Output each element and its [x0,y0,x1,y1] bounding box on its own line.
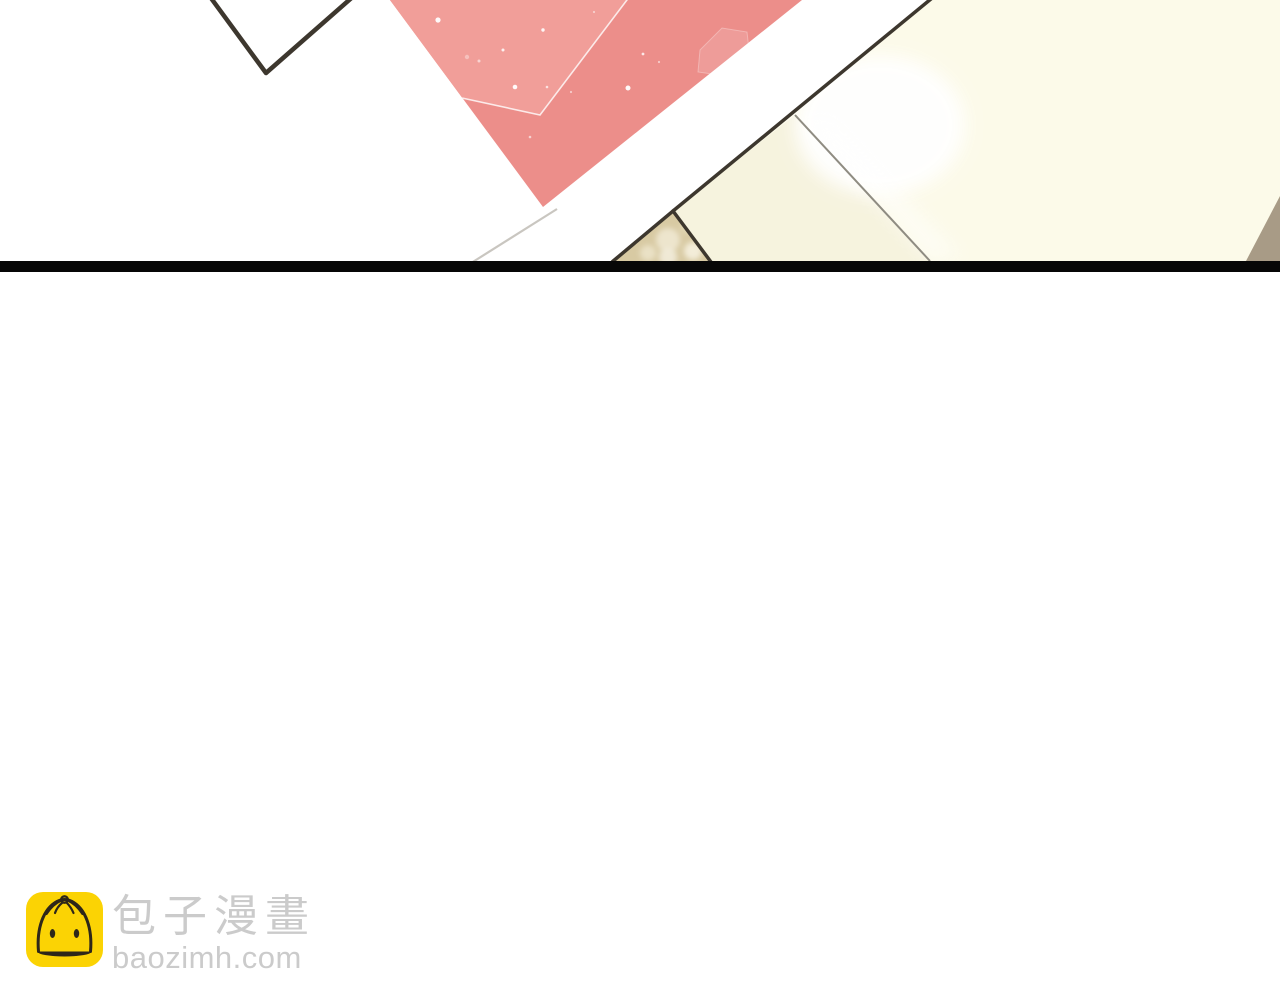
baozi-logo-icon [26,892,103,967]
watermark-site-url: baozimh.com [112,942,316,973]
site-watermark: 包子漫畫 baozimh.com [26,892,316,973]
panel-border-bar [0,261,1280,272]
watermark-site-name: 包子漫畫 [112,895,316,939]
watermark-text-block: 包子漫畫 baozimh.com [112,892,316,973]
comic-page[interactable]: 包子漫畫 baozimh.com [0,0,1280,1000]
comic-panel-art [0,0,1280,1000]
